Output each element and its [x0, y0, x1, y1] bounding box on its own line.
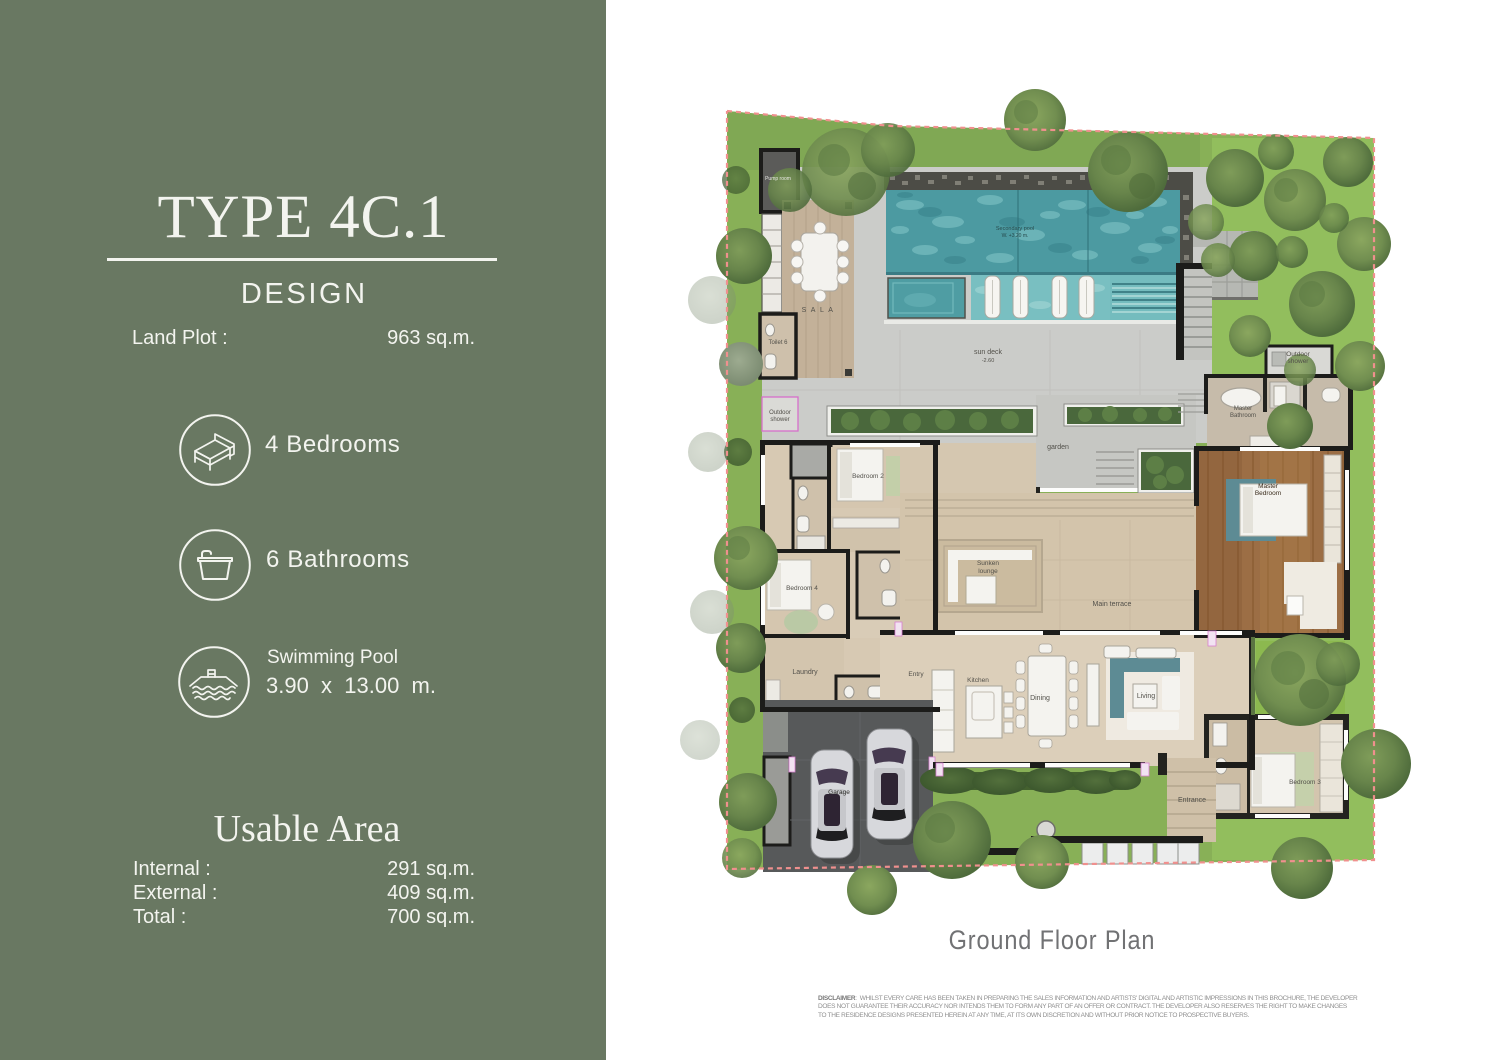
svg-text:Main terrace: Main terrace: [1093, 601, 1132, 608]
svg-text:Bedroom: Bedroom: [1255, 490, 1281, 497]
svg-text:garden: garden: [1047, 444, 1069, 451]
svg-text:Bedroom 2: Bedroom 2: [852, 473, 884, 480]
svg-text:W. +3.20 m.: W. +3.20 m.: [1002, 233, 1029, 239]
svg-text:Bedroom 4: Bedroom 4: [786, 585, 818, 592]
svg-text:Entrance: Entrance: [1178, 797, 1206, 804]
svg-text:S A L A: S A L A: [802, 307, 835, 314]
svg-text:Pump room: Pump room: [765, 176, 791, 182]
svg-text:Garage: Garage: [828, 789, 850, 796]
svg-text:Sunken: Sunken: [977, 560, 999, 567]
svg-text:-2.60: -2.60: [982, 358, 995, 364]
svg-text:shower: shower: [770, 417, 789, 423]
svg-text:Bathroom: Bathroom: [1230, 413, 1256, 419]
svg-text:sun deck: sun deck: [974, 349, 1003, 356]
svg-text:Master: Master: [1258, 483, 1279, 490]
svg-text:Outdoor: Outdoor: [1286, 351, 1310, 358]
svg-text:Outdoor: Outdoor: [769, 410, 791, 416]
svg-text:Dining: Dining: [1030, 695, 1050, 702]
svg-text:Laundry: Laundry: [792, 669, 818, 676]
svg-text:Bedroom 3: Bedroom 3: [1289, 779, 1321, 786]
svg-text:Master: Master: [1234, 406, 1252, 412]
svg-text:shower: shower: [1288, 358, 1310, 365]
svg-text:Toilet 6: Toilet 6: [768, 340, 788, 346]
svg-text:lounge: lounge: [978, 568, 998, 575]
svg-text:Entry: Entry: [908, 671, 924, 678]
svg-text:Living: Living: [1137, 693, 1155, 700]
svg-text:Secondary pool: Secondary pool: [996, 226, 1034, 232]
svg-text:Kitchen: Kitchen: [967, 677, 989, 684]
